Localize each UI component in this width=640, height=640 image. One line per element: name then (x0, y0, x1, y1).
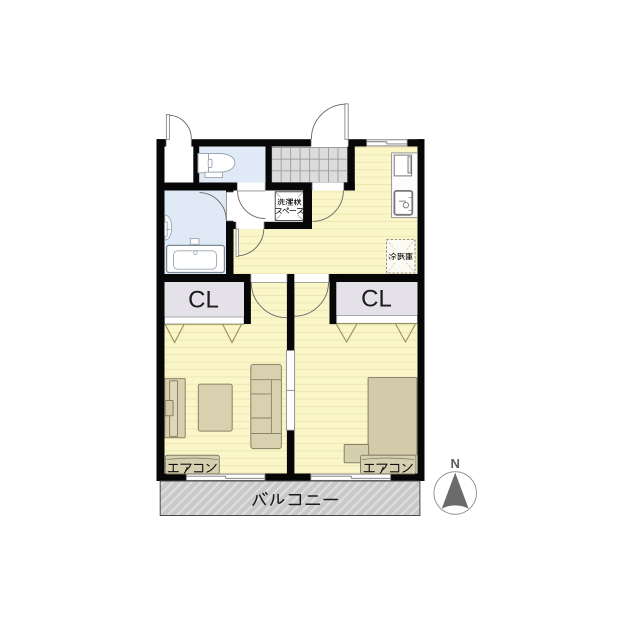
svg-text:CL: CL (188, 287, 219, 314)
svg-text:N: N (451, 456, 460, 471)
svg-text:CL: CL (361, 286, 392, 313)
